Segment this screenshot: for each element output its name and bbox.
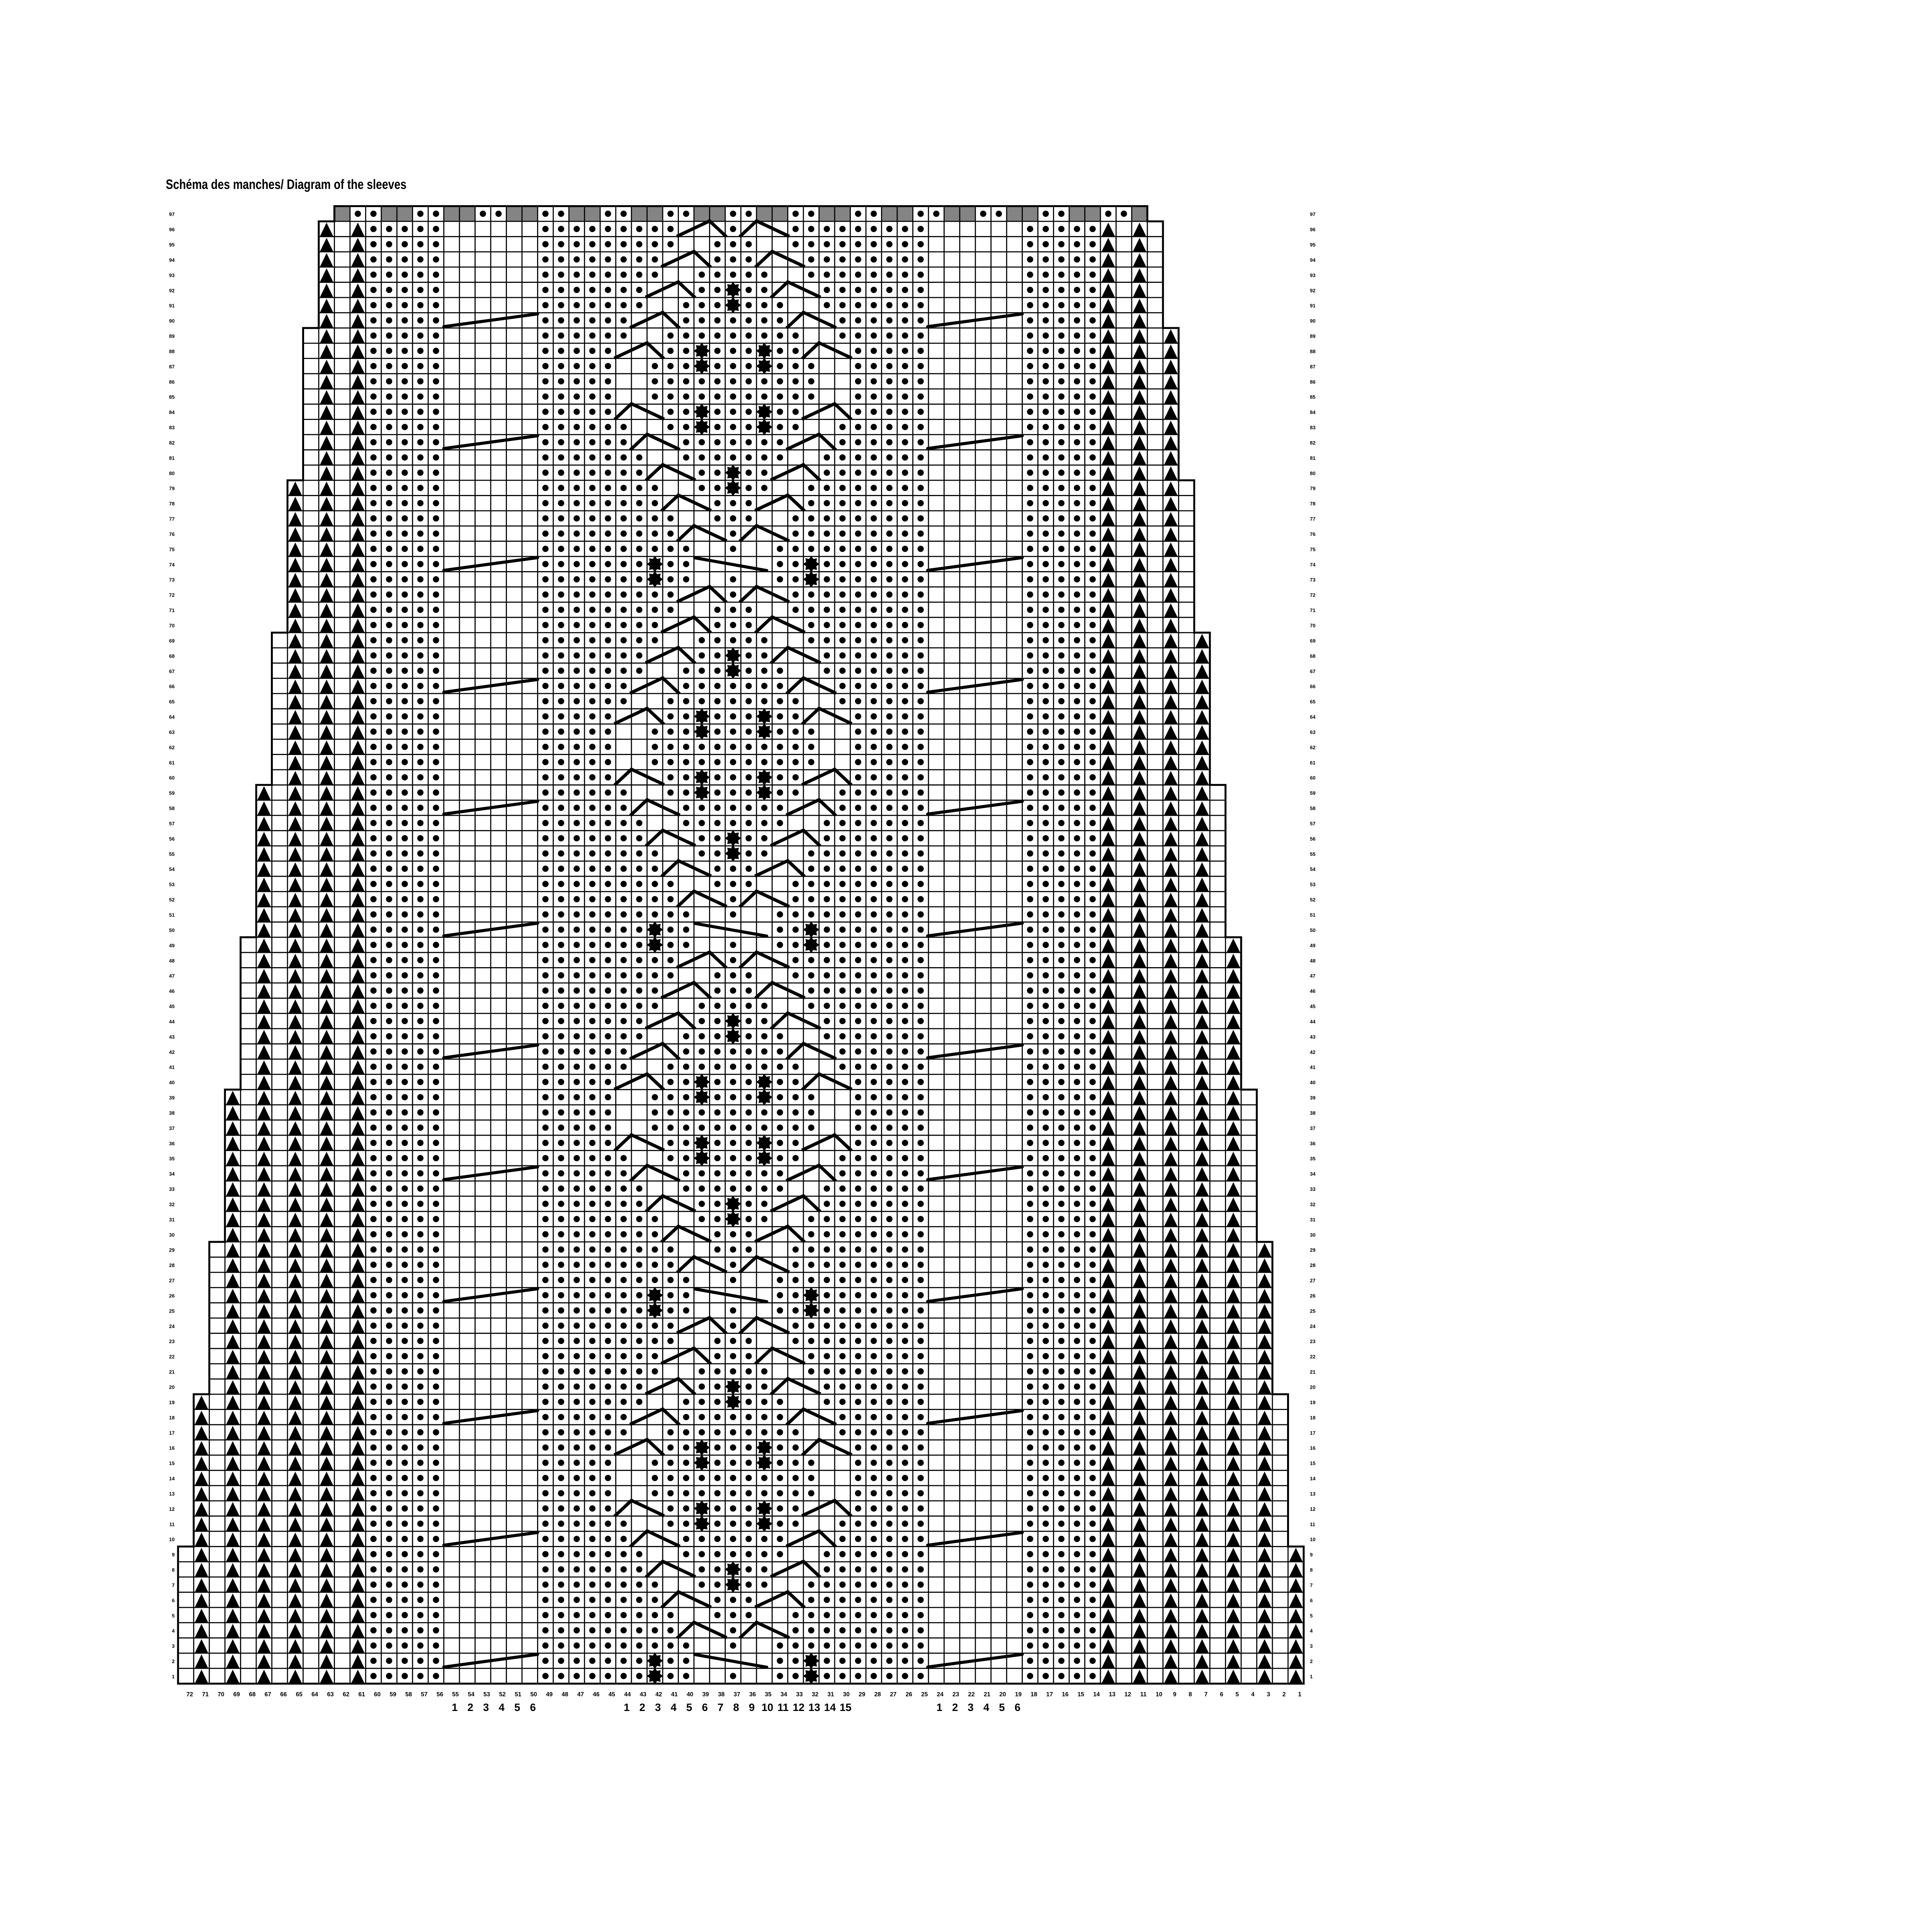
svg-text:37: 37 (169, 1125, 175, 1131)
svg-text:94: 94 (1310, 257, 1316, 263)
svg-text:55: 55 (452, 1691, 459, 1698)
svg-text:6: 6 (1310, 1597, 1313, 1603)
svg-text:33: 33 (1310, 1186, 1315, 1192)
svg-text:62: 62 (169, 745, 175, 750)
svg-text:24: 24 (937, 1691, 944, 1698)
svg-text:12: 12 (169, 1506, 175, 1512)
svg-text:10: 10 (1310, 1537, 1315, 1543)
svg-text:30: 30 (169, 1232, 175, 1238)
svg-text:69: 69 (1310, 638, 1315, 644)
svg-text:22: 22 (1310, 1354, 1315, 1360)
svg-text:4: 4 (983, 1701, 990, 1713)
svg-text:57: 57 (169, 821, 175, 827)
svg-text:60: 60 (374, 1691, 381, 1698)
svg-text:91: 91 (169, 303, 175, 309)
svg-text:45: 45 (1310, 1003, 1315, 1009)
svg-text:94: 94 (169, 257, 175, 263)
svg-text:48: 48 (169, 958, 175, 964)
svg-text:57: 57 (1310, 821, 1315, 827)
svg-text:50: 50 (169, 927, 175, 933)
svg-text:7: 7 (1310, 1582, 1313, 1588)
svg-text:52: 52 (169, 897, 175, 903)
svg-text:1: 1 (452, 1701, 457, 1713)
svg-text:54: 54 (1310, 866, 1316, 872)
svg-text:20: 20 (999, 1691, 1006, 1698)
svg-text:15: 15 (1078, 1691, 1085, 1698)
svg-text:42: 42 (169, 1049, 175, 1055)
svg-text:88: 88 (1310, 349, 1315, 354)
svg-text:64: 64 (1310, 714, 1316, 720)
svg-text:53: 53 (169, 882, 175, 888)
svg-text:43: 43 (640, 1691, 647, 1698)
svg-text:23: 23 (952, 1691, 959, 1698)
svg-text:82: 82 (169, 440, 175, 446)
svg-text:72: 72 (1310, 592, 1315, 598)
svg-text:35: 35 (169, 1156, 175, 1162)
svg-text:13: 13 (1109, 1691, 1116, 1698)
svg-text:47: 47 (169, 973, 175, 979)
svg-text:25: 25 (921, 1691, 928, 1698)
svg-text:2: 2 (1282, 1691, 1286, 1698)
svg-text:56: 56 (437, 1691, 444, 1698)
svg-text:8: 8 (733, 1701, 739, 1713)
svg-text:87: 87 (1310, 364, 1315, 369)
svg-text:21: 21 (984, 1691, 991, 1698)
svg-text:14: 14 (1310, 1476, 1316, 1481)
svg-text:24: 24 (169, 1323, 175, 1329)
svg-text:9: 9 (172, 1552, 175, 1558)
svg-text:15: 15 (169, 1461, 175, 1466)
svg-text:12: 12 (793, 1701, 805, 1713)
svg-text:20: 20 (169, 1384, 175, 1390)
svg-text:23: 23 (1310, 1338, 1315, 1344)
svg-text:39: 39 (702, 1691, 709, 1698)
svg-text:81: 81 (1310, 455, 1315, 461)
svg-text:95: 95 (1310, 242, 1315, 248)
svg-text:25: 25 (169, 1308, 175, 1314)
svg-text:64: 64 (169, 714, 175, 720)
svg-text:88: 88 (169, 349, 175, 354)
svg-text:38: 38 (1310, 1110, 1315, 1116)
svg-text:46: 46 (169, 988, 175, 994)
svg-text:52: 52 (1310, 897, 1315, 903)
svg-text:86: 86 (169, 379, 175, 385)
svg-text:96: 96 (169, 227, 175, 233)
svg-text:41: 41 (671, 1691, 678, 1698)
svg-text:1: 1 (1310, 1674, 1313, 1680)
svg-text:80: 80 (169, 470, 175, 476)
svg-text:21: 21 (1310, 1369, 1315, 1375)
svg-text:51: 51 (515, 1691, 522, 1698)
svg-text:16: 16 (169, 1445, 175, 1451)
svg-text:25: 25 (1310, 1308, 1315, 1314)
svg-text:29: 29 (859, 1691, 866, 1698)
svg-text:16: 16 (1062, 1691, 1069, 1698)
svg-text:60: 60 (1310, 775, 1315, 781)
svg-text:85: 85 (1310, 394, 1315, 400)
svg-text:6: 6 (702, 1701, 708, 1713)
svg-text:79: 79 (169, 486, 175, 492)
svg-text:24: 24 (1310, 1323, 1316, 1329)
svg-text:7: 7 (172, 1582, 175, 1588)
svg-text:3: 3 (172, 1643, 175, 1649)
svg-text:61: 61 (358, 1691, 365, 1698)
svg-text:43: 43 (169, 1034, 175, 1040)
svg-text:40: 40 (1310, 1080, 1315, 1085)
svg-text:32: 32 (812, 1691, 818, 1698)
svg-text:59: 59 (169, 790, 175, 796)
svg-text:35: 35 (765, 1691, 772, 1698)
svg-text:19: 19 (169, 1400, 175, 1405)
svg-text:4: 4 (172, 1628, 175, 1634)
svg-text:6: 6 (1015, 1701, 1020, 1713)
svg-text:76: 76 (1310, 531, 1315, 537)
svg-text:5: 5 (172, 1613, 175, 1619)
svg-text:83: 83 (1310, 425, 1315, 430)
svg-text:13: 13 (169, 1491, 175, 1497)
svg-text:26: 26 (169, 1293, 175, 1299)
svg-text:17: 17 (1046, 1691, 1053, 1698)
svg-text:66: 66 (280, 1691, 287, 1698)
svg-text:11: 11 (777, 1701, 789, 1713)
svg-text:40: 40 (687, 1691, 693, 1698)
svg-text:22: 22 (968, 1691, 975, 1698)
svg-text:53: 53 (1310, 882, 1315, 888)
svg-text:61: 61 (1310, 760, 1315, 765)
svg-text:30: 30 (1310, 1232, 1315, 1238)
svg-text:92: 92 (1310, 287, 1315, 293)
svg-text:49: 49 (169, 942, 175, 948)
svg-text:70: 70 (169, 623, 175, 629)
svg-text:90: 90 (1310, 318, 1315, 324)
svg-text:1: 1 (172, 1674, 175, 1680)
svg-text:2: 2 (639, 1701, 645, 1713)
svg-text:34: 34 (781, 1691, 787, 1698)
svg-text:40: 40 (169, 1080, 175, 1085)
svg-text:90: 90 (169, 318, 175, 324)
svg-text:45: 45 (609, 1691, 616, 1698)
svg-text:84: 84 (169, 410, 175, 415)
svg-text:80: 80 (1310, 470, 1315, 476)
svg-text:9: 9 (1173, 1691, 1177, 1698)
svg-text:70: 70 (1310, 623, 1315, 629)
svg-text:8: 8 (1310, 1567, 1313, 1573)
svg-text:54: 54 (169, 866, 175, 872)
svg-text:11: 11 (1310, 1521, 1315, 1527)
svg-text:16: 16 (1310, 1445, 1315, 1451)
svg-text:71: 71 (1310, 607, 1315, 613)
svg-text:93: 93 (169, 272, 175, 278)
svg-text:19: 19 (1310, 1400, 1315, 1405)
svg-text:3: 3 (1267, 1691, 1270, 1698)
svg-text:5: 5 (999, 1701, 1005, 1713)
svg-text:12: 12 (1124, 1691, 1131, 1698)
svg-text:78: 78 (1310, 501, 1315, 507)
svg-text:64: 64 (311, 1691, 318, 1698)
svg-text:2: 2 (952, 1701, 958, 1713)
svg-text:13: 13 (1310, 1491, 1315, 1497)
svg-text:55: 55 (169, 851, 175, 857)
svg-text:91: 91 (1310, 303, 1315, 309)
svg-text:75: 75 (169, 546, 175, 552)
svg-text:50: 50 (530, 1691, 537, 1698)
svg-text:18: 18 (1310, 1415, 1315, 1420)
svg-text:89: 89 (169, 333, 175, 339)
svg-text:67: 67 (169, 668, 175, 674)
svg-text:15: 15 (1310, 1461, 1315, 1466)
svg-text:10: 10 (1156, 1691, 1162, 1698)
svg-text:18: 18 (169, 1415, 175, 1420)
svg-text:67: 67 (265, 1691, 271, 1698)
svg-text:58: 58 (1310, 806, 1315, 811)
svg-text:54: 54 (468, 1691, 475, 1698)
svg-text:61: 61 (169, 760, 175, 765)
svg-text:67: 67 (1310, 668, 1315, 674)
svg-text:59: 59 (1310, 790, 1315, 796)
svg-text:97: 97 (1310, 211, 1315, 217)
svg-text:41: 41 (1310, 1065, 1315, 1070)
svg-text:34: 34 (169, 1171, 175, 1177)
svg-text:7: 7 (718, 1701, 723, 1713)
svg-text:71: 71 (169, 607, 175, 613)
svg-text:10: 10 (169, 1537, 175, 1543)
svg-text:56: 56 (1310, 836, 1315, 842)
svg-text:73: 73 (169, 577, 175, 583)
svg-text:57: 57 (421, 1691, 427, 1698)
svg-text:93: 93 (1310, 272, 1315, 278)
svg-text:63: 63 (327, 1691, 334, 1698)
svg-text:9: 9 (1310, 1552, 1313, 1558)
svg-text:76: 76 (169, 531, 175, 537)
svg-text:33: 33 (796, 1691, 803, 1698)
svg-text:11: 11 (1140, 1691, 1147, 1698)
svg-text:87: 87 (169, 364, 175, 369)
svg-text:48: 48 (561, 1691, 568, 1698)
svg-text:41: 41 (169, 1065, 175, 1070)
svg-text:18: 18 (1031, 1691, 1037, 1698)
svg-text:85: 85 (169, 394, 175, 400)
svg-text:5: 5 (1310, 1613, 1313, 1619)
svg-text:6: 6 (172, 1597, 175, 1603)
svg-text:70: 70 (218, 1691, 224, 1698)
svg-text:47: 47 (1310, 973, 1315, 979)
svg-text:2: 2 (1310, 1658, 1313, 1664)
svg-text:38: 38 (718, 1691, 725, 1698)
svg-text:4: 4 (499, 1701, 505, 1713)
svg-text:28: 28 (874, 1691, 881, 1698)
svg-text:14: 14 (169, 1476, 175, 1481)
svg-text:63: 63 (1310, 730, 1315, 735)
svg-text:34: 34 (1310, 1171, 1316, 1177)
svg-text:4: 4 (1251, 1691, 1255, 1698)
svg-text:1: 1 (624, 1701, 629, 1713)
svg-text:68: 68 (1310, 653, 1315, 659)
svg-text:3: 3 (655, 1701, 661, 1713)
svg-text:27: 27 (169, 1278, 175, 1284)
svg-text:12: 12 (1310, 1506, 1315, 1512)
svg-text:7: 7 (1204, 1691, 1208, 1698)
svg-text:17: 17 (1310, 1430, 1315, 1436)
svg-text:66: 66 (1310, 684, 1315, 689)
svg-text:14: 14 (824, 1701, 836, 1713)
svg-text:9: 9 (749, 1701, 755, 1713)
svg-text:60: 60 (169, 775, 175, 781)
svg-text:21: 21 (169, 1369, 175, 1375)
svg-text:53: 53 (483, 1691, 490, 1698)
svg-text:23: 23 (169, 1338, 175, 1344)
svg-text:29: 29 (169, 1247, 175, 1253)
svg-text:59: 59 (389, 1691, 396, 1698)
svg-text:5: 5 (686, 1701, 692, 1713)
svg-text:83: 83 (169, 425, 175, 430)
svg-text:71: 71 (202, 1691, 209, 1698)
svg-text:15: 15 (840, 1701, 852, 1713)
svg-text:72: 72 (169, 592, 175, 598)
svg-text:3: 3 (968, 1701, 973, 1713)
svg-text:30: 30 (843, 1691, 850, 1698)
svg-text:50: 50 (1310, 927, 1315, 933)
svg-text:96: 96 (1310, 227, 1315, 233)
svg-text:97: 97 (169, 211, 175, 217)
svg-text:Schéma des manches/ Diagram of: Schéma des manches/ Diagram of the sleev… (166, 177, 406, 192)
svg-text:39: 39 (169, 1095, 175, 1101)
svg-text:44: 44 (1310, 1019, 1316, 1024)
svg-text:95: 95 (169, 242, 175, 248)
svg-text:69: 69 (169, 638, 175, 644)
svg-text:55: 55 (1310, 851, 1315, 857)
svg-text:2: 2 (468, 1701, 473, 1713)
svg-text:11: 11 (169, 1521, 175, 1527)
svg-text:72: 72 (186, 1691, 193, 1698)
svg-text:48: 48 (1310, 958, 1315, 964)
svg-text:31: 31 (1310, 1217, 1315, 1223)
svg-text:47: 47 (577, 1691, 584, 1698)
svg-text:22: 22 (169, 1354, 175, 1360)
svg-text:68: 68 (249, 1691, 256, 1698)
svg-text:36: 36 (749, 1691, 756, 1698)
svg-text:4: 4 (1310, 1628, 1313, 1634)
svg-text:89: 89 (1310, 333, 1315, 339)
svg-text:3: 3 (1310, 1643, 1313, 1649)
svg-text:75: 75 (1310, 546, 1315, 552)
svg-text:14: 14 (1093, 1691, 1100, 1698)
svg-text:77: 77 (169, 516, 175, 522)
svg-text:17: 17 (169, 1430, 175, 1436)
svg-text:43: 43 (1310, 1034, 1315, 1040)
svg-text:65: 65 (1310, 699, 1315, 705)
svg-text:56: 56 (169, 836, 175, 842)
svg-text:26: 26 (1310, 1293, 1315, 1299)
svg-text:28: 28 (169, 1262, 175, 1268)
svg-text:36: 36 (1310, 1141, 1315, 1146)
svg-text:5: 5 (514, 1701, 520, 1713)
svg-text:81: 81 (169, 455, 175, 461)
svg-text:74: 74 (169, 562, 175, 568)
svg-text:73: 73 (1310, 577, 1315, 583)
svg-text:3: 3 (483, 1701, 489, 1713)
svg-text:42: 42 (655, 1691, 662, 1698)
svg-text:84: 84 (1310, 410, 1316, 415)
svg-text:27: 27 (890, 1691, 896, 1698)
svg-text:65: 65 (296, 1691, 303, 1698)
svg-text:82: 82 (1310, 440, 1315, 446)
svg-text:44: 44 (624, 1691, 631, 1698)
svg-text:69: 69 (233, 1691, 240, 1698)
svg-text:62: 62 (343, 1691, 349, 1698)
svg-text:63: 63 (169, 730, 175, 735)
svg-text:20: 20 (1310, 1384, 1315, 1390)
svg-text:92: 92 (169, 287, 175, 293)
svg-text:79: 79 (1310, 486, 1315, 492)
svg-text:6: 6 (530, 1701, 536, 1713)
svg-text:58: 58 (169, 806, 175, 811)
svg-text:65: 65 (169, 699, 175, 705)
svg-text:31: 31 (169, 1217, 175, 1223)
svg-text:5: 5 (1235, 1691, 1239, 1698)
svg-text:1: 1 (1298, 1691, 1301, 1698)
svg-text:29: 29 (1310, 1247, 1315, 1253)
svg-text:52: 52 (499, 1691, 506, 1698)
svg-text:86: 86 (1310, 379, 1315, 385)
svg-text:42: 42 (1310, 1049, 1315, 1055)
svg-text:77: 77 (1310, 516, 1315, 522)
svg-text:49: 49 (546, 1691, 553, 1698)
svg-text:1: 1 (936, 1701, 942, 1713)
svg-text:38: 38 (169, 1110, 175, 1116)
svg-text:37: 37 (733, 1691, 740, 1698)
svg-text:45: 45 (169, 1003, 175, 1009)
svg-text:35: 35 (1310, 1156, 1315, 1162)
svg-text:68: 68 (169, 653, 175, 659)
svg-text:66: 66 (169, 684, 175, 689)
svg-text:58: 58 (405, 1691, 412, 1698)
svg-text:74: 74 (1310, 562, 1316, 568)
svg-text:27: 27 (1310, 1278, 1315, 1284)
svg-text:36: 36 (169, 1141, 175, 1146)
svg-text:31: 31 (827, 1691, 834, 1698)
svg-text:32: 32 (169, 1202, 175, 1207)
svg-text:51: 51 (1310, 912, 1315, 918)
svg-text:8: 8 (172, 1567, 175, 1573)
svg-text:28: 28 (1310, 1262, 1315, 1268)
svg-text:37: 37 (1310, 1125, 1315, 1131)
svg-text:19: 19 (1015, 1691, 1022, 1698)
svg-text:10: 10 (762, 1701, 774, 1713)
svg-text:26: 26 (906, 1691, 913, 1698)
svg-text:8: 8 (1189, 1691, 1192, 1698)
svg-text:44: 44 (169, 1019, 175, 1024)
svg-text:49: 49 (1310, 942, 1315, 948)
svg-text:4: 4 (671, 1701, 677, 1713)
svg-text:46: 46 (593, 1691, 600, 1698)
svg-text:6: 6 (1220, 1691, 1223, 1698)
svg-text:51: 51 (169, 912, 175, 918)
svg-text:33: 33 (169, 1186, 175, 1192)
svg-text:78: 78 (169, 501, 175, 507)
svg-text:62: 62 (1310, 745, 1315, 750)
svg-text:2: 2 (172, 1658, 175, 1664)
svg-text:32: 32 (1310, 1202, 1315, 1207)
svg-text:39: 39 (1310, 1095, 1315, 1101)
svg-text:46: 46 (1310, 988, 1315, 994)
svg-text:13: 13 (808, 1701, 820, 1713)
